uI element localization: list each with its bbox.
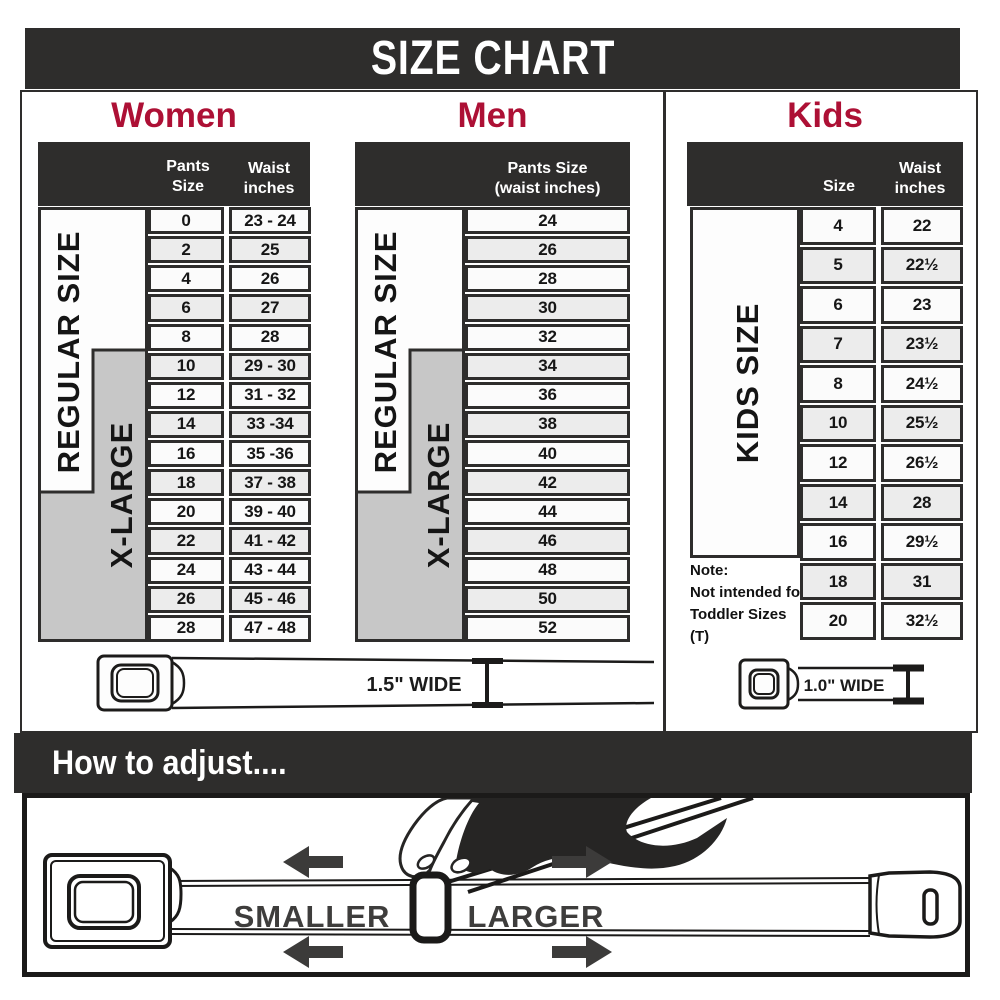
women-regular-size-label: REGULAR SIZE	[51, 231, 86, 474]
table-cell: 40	[465, 440, 630, 467]
table-cell: 24	[148, 557, 224, 584]
kids-note-line1: Note:	[690, 562, 728, 579]
table-cell: 6	[800, 286, 876, 324]
women-table-header: Pants Size Waist inches	[38, 142, 310, 206]
table-cell: 48	[465, 557, 630, 584]
men-table-header: Pants Size (waist inches)	[355, 142, 630, 206]
page-title: SIZE CHART	[370, 31, 614, 86]
women-rows: 023 - 242254266278281029 - 301231 - 3214…	[148, 207, 311, 642]
women-col-waist: Waist inches	[228, 159, 310, 199]
size-tables-panel: Women Pants Size Waist inches REGULAR SI…	[20, 90, 978, 733]
table-cell: 29½	[881, 523, 963, 561]
table-cell: 23½	[881, 326, 963, 364]
women-size-range-labels: REGULAR SIZE X-LARGE	[38, 207, 148, 642]
table-cell: 46	[465, 527, 630, 554]
adult-belt-width-label: 1.5" WIDE	[366, 674, 461, 696]
table-cell: 37 - 38	[229, 469, 311, 496]
men-size-range-labels: REGULAR SIZE X-LARGE	[355, 207, 465, 642]
kids-rows: 422522½623723½824½1025½1226½14281629½183…	[800, 207, 963, 640]
table-cell: 0	[148, 207, 224, 234]
table-cell: 31 - 32	[229, 382, 311, 409]
kids-note-line3: Toddler Sizes (T)	[690, 606, 786, 645]
table-cell: 26	[229, 265, 311, 292]
kids-belt-width-marker-icon	[893, 668, 924, 701]
adult-belt-illustration: 1.5" WIDE	[22, 648, 663, 728]
table-cell: 20	[148, 498, 224, 525]
table-cell: 8	[148, 324, 224, 351]
title-banner: SIZE CHART	[25, 28, 960, 89]
table-cell: 12	[800, 444, 876, 482]
table-cell: 43 - 44	[229, 557, 311, 584]
table-cell: 27	[229, 294, 311, 321]
table-cell: 24½	[881, 365, 963, 403]
men-rows: 242628303234363840424446485052	[465, 207, 630, 642]
table-cell: 18	[148, 469, 224, 496]
kids-note-line2: Not intended for	[690, 584, 806, 601]
table-cell: 35 -36	[229, 440, 311, 467]
kids-table-header: Size Waist inches	[687, 142, 963, 206]
men-xlarge-label: X-LARGE	[421, 422, 456, 569]
how-to-adjust-heading: How to adjust....	[52, 744, 287, 783]
men-col-line2: (waist inches)	[495, 180, 601, 197]
table-cell: 28	[465, 265, 630, 292]
adjust-buckle-icon	[45, 855, 181, 947]
table-cell: 26	[465, 236, 630, 263]
kids-col-size: Size	[800, 177, 878, 197]
table-cell: 28	[229, 324, 311, 351]
kids-col-waist-line1: Waist	[899, 160, 941, 177]
table-cell: 22	[148, 527, 224, 554]
table-cell: 14	[800, 484, 876, 522]
table-cell: 20	[800, 602, 876, 640]
table-cell: 42	[465, 469, 630, 496]
table-cell: 26½	[881, 444, 963, 482]
women-col-pants-size: Pants Size	[148, 157, 228, 197]
women-col-waist-line2: inches	[244, 180, 295, 197]
panel-divider	[663, 92, 666, 731]
table-cell: 41 - 42	[229, 527, 311, 554]
table-cell: 25½	[881, 405, 963, 443]
adjust-illustration-box: SMALLER LARGER	[22, 793, 970, 977]
table-cell: 34	[465, 353, 630, 380]
table-cell: 32½	[881, 602, 963, 640]
men-heading: Men	[355, 96, 630, 138]
kids-belt-buckle-icon	[740, 660, 798, 708]
table-cell: 10	[148, 353, 224, 380]
adult-belt-width-marker-icon	[472, 661, 503, 705]
women-col-waist-line1: Waist	[248, 160, 290, 177]
kids-belt-width-label: 1.0" WIDE	[804, 676, 885, 695]
table-cell: 25	[229, 236, 311, 263]
table-cell: 7	[800, 326, 876, 364]
smaller-label: SMALLER	[234, 899, 391, 934]
table-cell: 28	[148, 615, 224, 642]
table-cell: 24	[465, 207, 630, 234]
slider-clasp-icon	[413, 875, 448, 940]
adult-belt-buckle-icon	[98, 656, 184, 710]
size-chart-page: SIZE CHART Women Pants Size Waist inches…	[0, 0, 1000, 1000]
kids-col-waist-line2: inches	[895, 180, 946, 197]
table-cell: 22½	[881, 247, 963, 285]
men-col-line1: Pants Size	[507, 160, 587, 177]
smaller-arrow-bottom-icon	[283, 936, 343, 968]
kids-belt-illustration: 1.0" WIDE	[666, 648, 980, 728]
table-cell: 32	[465, 324, 630, 351]
kids-col-waist: Waist inches	[880, 159, 960, 199]
table-cell: 26	[148, 586, 224, 613]
table-cell: 8	[800, 365, 876, 403]
table-cell: 16	[800, 523, 876, 561]
table-cell: 31	[881, 563, 963, 601]
table-cell: 30	[465, 294, 630, 321]
table-cell: 23 - 24	[229, 207, 311, 234]
table-cell: 10	[800, 405, 876, 443]
women-xlarge-label: X-LARGE	[104, 422, 139, 569]
table-cell: 52	[465, 615, 630, 642]
table-cell: 4	[148, 265, 224, 292]
table-cell: 5	[800, 247, 876, 285]
table-cell: 6	[148, 294, 224, 321]
table-cell: 23	[881, 286, 963, 324]
table-cell: 50	[465, 586, 630, 613]
table-cell: 22	[881, 207, 963, 245]
how-to-adjust-bar: How to adjust....	[14, 733, 972, 793]
table-cell: 45 - 46	[229, 586, 311, 613]
table-cell: 29 - 30	[229, 353, 311, 380]
larger-arrow-bottom-icon	[552, 936, 612, 968]
men-col-pants-size: Pants Size (waist inches)	[465, 159, 630, 199]
table-cell: 39 - 40	[229, 498, 311, 525]
kids-note: Note: Not intended for Toddler Sizes (T)	[690, 560, 808, 648]
women-heading: Women	[38, 96, 310, 138]
table-cell: 4	[800, 207, 876, 245]
table-cell: 38	[465, 411, 630, 438]
men-regular-size-label: REGULAR SIZE	[368, 231, 403, 474]
smaller-arrow-top-icon	[283, 846, 343, 878]
table-cell: 16	[148, 440, 224, 467]
kids-size-label: KIDS SIZE	[730, 303, 765, 464]
table-cell: 33 -34	[229, 411, 311, 438]
table-cell: 36	[465, 382, 630, 409]
table-cell: 47 - 48	[229, 615, 311, 642]
table-cell: 28	[881, 484, 963, 522]
table-cell: 44	[465, 498, 630, 525]
table-cell: 14	[148, 411, 224, 438]
table-cell: 12	[148, 382, 224, 409]
adjust-belt-illustration: SMALLER LARGER	[27, 798, 965, 972]
larger-label: LARGER	[468, 899, 605, 934]
table-cell: 18	[800, 563, 876, 601]
belt-tip-icon	[870, 872, 960, 937]
table-cell: 2	[148, 236, 224, 263]
kids-heading: Kids	[687, 96, 963, 138]
